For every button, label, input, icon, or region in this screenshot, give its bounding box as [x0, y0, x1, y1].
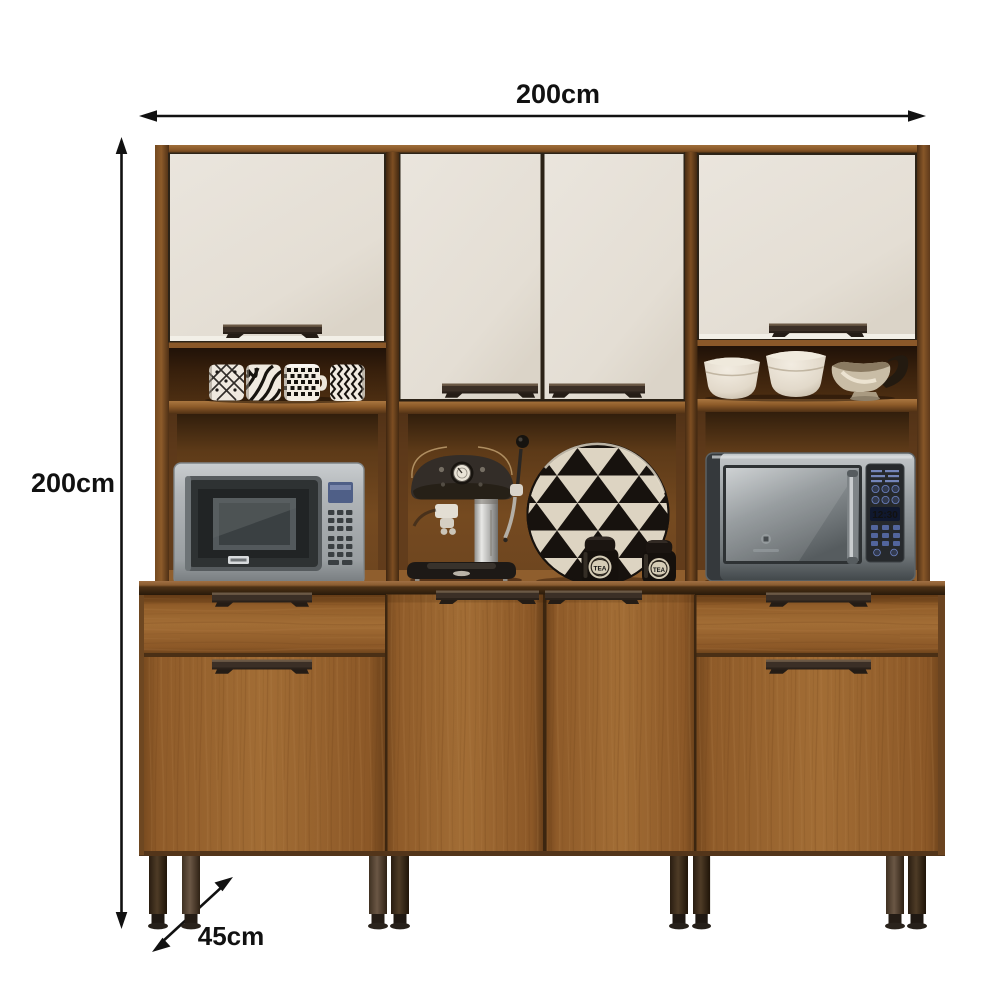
svg-text:12:30: 12:30: [872, 510, 898, 521]
svg-text:45cm: 45cm: [198, 921, 265, 951]
svg-text:200cm: 200cm: [516, 79, 600, 109]
svg-text:TEA: TEA: [653, 568, 666, 574]
svg-text:TEA: TEA: [594, 566, 607, 573]
svg-text:200cm: 200cm: [31, 468, 115, 498]
